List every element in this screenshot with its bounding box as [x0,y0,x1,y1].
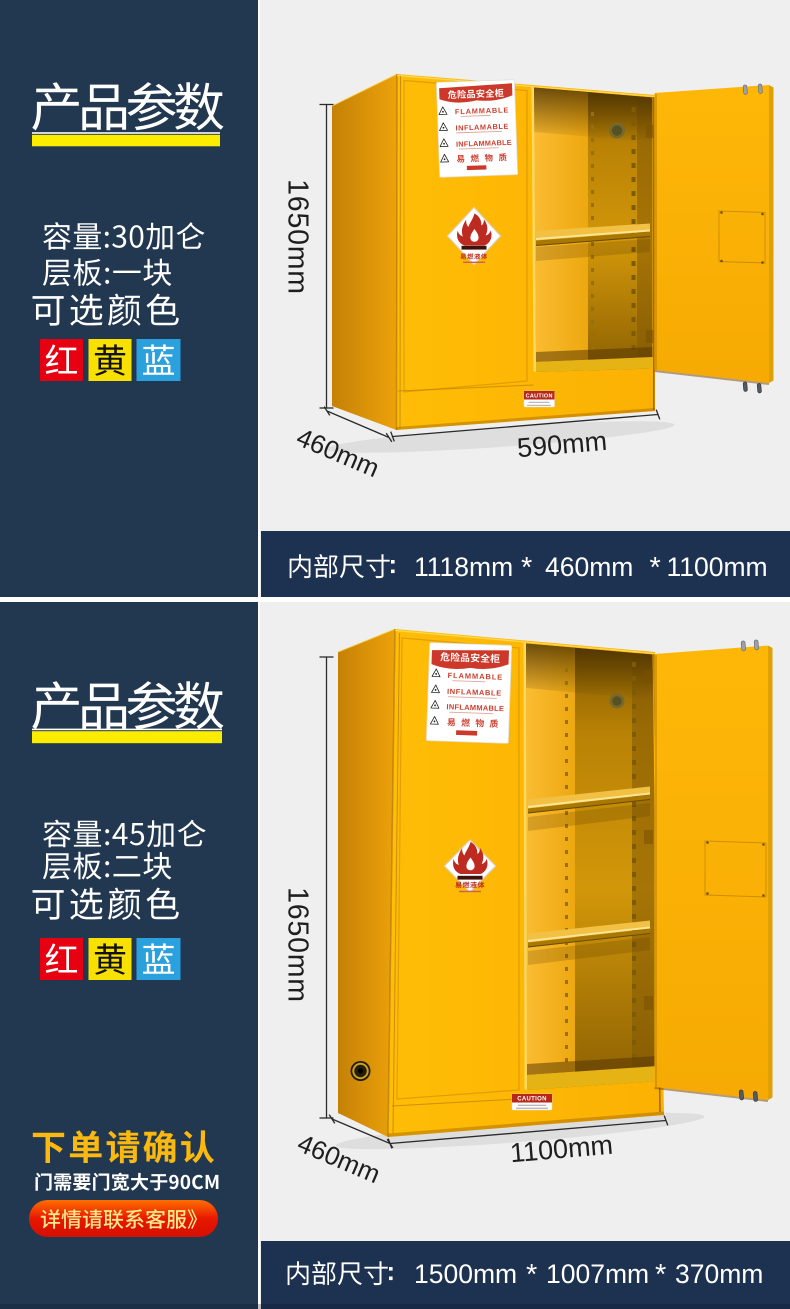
svg-text:1650mm: 1650mm [282,179,314,295]
svg-text:1500mm: 1500mm [414,1259,517,1289]
svg-text:460mm: 460mm [292,422,384,483]
svg-text:FLAMMABLE: FLAMMABLE [447,671,503,682]
svg-text:*: * [650,552,661,584]
svg-text:CAUTION: CAUTION [526,394,553,400]
svg-text:*: * [655,1259,666,1291]
svg-text:*: * [526,1259,537,1291]
svg-text:1118mm: 1118mm [414,552,513,582]
svg-text:590mm: 590mm [516,426,608,463]
svg-text:1100mm: 1100mm [667,552,768,582]
svg-text:INFLAMABLE: INFLAMABLE [447,687,502,698]
svg-text:FLAMMABLE: FLAMMABLE [455,105,510,116]
svg-text:370mm: 370mm [675,1259,763,1289]
svg-text:1650mm: 1650mm [282,887,314,1003]
svg-text:*: * [521,552,532,584]
svg-text:CAUTION: CAUTION [517,1097,546,1103]
svg-text:1007mm: 1007mm [546,1259,649,1289]
svg-text:460mm: 460mm [545,552,633,582]
